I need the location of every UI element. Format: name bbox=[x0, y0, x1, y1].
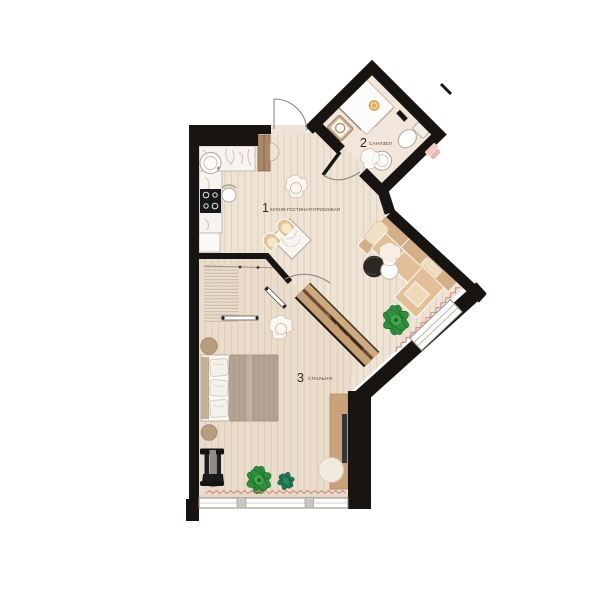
svg-text:КУХНЯ-ГОСТИНАЯ-ПРИХОЖАЯ: КУХНЯ-ГОСТИНАЯ-ПРИХОЖАЯ bbox=[270, 207, 340, 212]
svg-text:САНУЗЕЛ: САНУЗЕЛ bbox=[369, 141, 392, 147]
svg-text:СПАЛЬНЯ: СПАЛЬНЯ bbox=[308, 376, 333, 382]
svg-text:3: 3 bbox=[297, 371, 304, 385]
svg-text:2: 2 bbox=[360, 136, 367, 150]
svg-text:1: 1 bbox=[262, 201, 269, 215]
